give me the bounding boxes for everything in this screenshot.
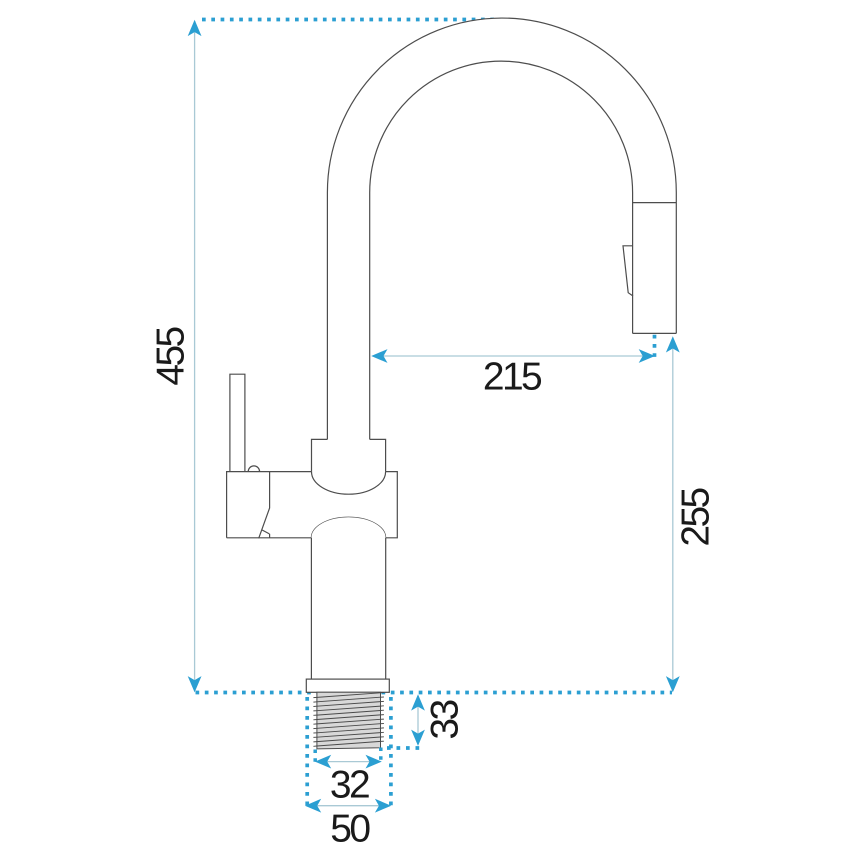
svg-text:32: 32	[330, 763, 369, 806]
svg-text:50: 50	[330, 808, 370, 851]
svg-text:215: 215	[483, 356, 542, 399]
svg-text:255: 255	[675, 487, 718, 546]
svg-text:455: 455	[150, 326, 193, 385]
svg-text:33: 33	[424, 701, 467, 740]
